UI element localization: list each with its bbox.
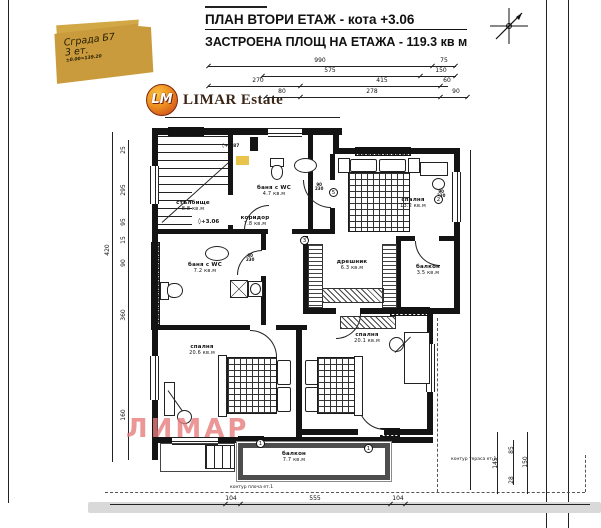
wardrobe [308, 244, 323, 308]
toilet [167, 283, 183, 298]
wardrobe [322, 288, 384, 303]
room-area: 8.8 кв.м [176, 206, 210, 212]
watermark: ЛИМАР [126, 414, 249, 444]
door-arc [415, 241, 440, 266]
dimension-line [165, 117, 340, 118]
wall [296, 325, 302, 443]
tag-circle: 2 [434, 195, 443, 204]
stair-treads [158, 136, 228, 192]
shower [230, 280, 248, 298]
room-area: 4.7 кв.м [257, 191, 291, 197]
dimension-value: 270 [252, 78, 263, 84]
room-label-bedroom-br: спалня 20.1 кв.м [354, 332, 380, 344]
stamp-notch [138, 14, 153, 27]
dimension-value: 278 [366, 89, 377, 95]
dimension-value: 420 [105, 244, 111, 255]
wall [303, 308, 460, 314]
dim-tick [453, 74, 458, 79]
door-size-label: 90230 [315, 183, 323, 191]
dimension-line [262, 76, 456, 77]
room-area: 7.2 кв.м [188, 268, 222, 274]
dimension-value: 415 [376, 78, 387, 84]
room-label-bath-left: баня с WC 7.2 кв.м [188, 262, 222, 274]
dimension-value: 104 [225, 496, 236, 502]
window [150, 356, 159, 400]
room-label-balcony-right: балкон 3.5 кв.м [416, 264, 440, 276]
duct [250, 137, 258, 151]
door-size-label: 80230 [246, 254, 254, 262]
dashed-contour [585, 455, 586, 492]
dimension-line [112, 132, 113, 462]
plan-subtitle: ЗАСТРОЕНА ПЛОЩ НА ЕТАЖА - 119.3 кв м [205, 35, 467, 49]
toilet [271, 165, 283, 180]
room-label-bedroom-tr: спалня 13.2 кв.м [400, 197, 426, 209]
room-area: 13.2 кв.м [400, 203, 426, 209]
dimension-value: 160 [121, 409, 127, 420]
room-area: 6.3 кв.м [337, 265, 368, 271]
dimension-value: 90 [452, 89, 460, 95]
dimension-value: 104 [392, 496, 403, 502]
room-label-bedroom-bl: спалня 20.6 кв.м [189, 344, 215, 356]
nightstand [408, 158, 420, 173]
dimension-value: 150 [523, 456, 529, 467]
header-rule [205, 6, 267, 8]
room-label-corridor: коридор 7.8 кв.м [241, 215, 270, 227]
door-opening [250, 325, 276, 330]
pillow [277, 360, 291, 385]
dresser [420, 162, 448, 176]
dimension-value: 85 [509, 446, 515, 454]
washing-machine-drum [250, 283, 261, 295]
dimension-value: 75 [440, 58, 448, 64]
bed-footboard [354, 356, 363, 416]
dimension-value: 295 [121, 184, 127, 195]
sink [294, 158, 317, 173]
bed-footboard [218, 355, 227, 417]
wall-hatch [168, 127, 204, 136]
annotation-note: контур тераса ет.1 [451, 457, 496, 462]
dimension-value: 575 [324, 68, 335, 74]
door-arc [250, 330, 277, 357]
dashed-contour [105, 492, 585, 493]
wardrobe [382, 244, 397, 308]
dim-tick [453, 64, 458, 69]
bed [227, 357, 277, 414]
title-block: ПЛАН ВТОРИ ЕТАЖ - кота +3.06 ЗАСТРОЕНА П… [205, 12, 467, 49]
sink [205, 246, 229, 261]
floor-plan-sheet: ПЛАН ВТОРИ ЕТАЖ - кота +3.06 ЗАСТРОЕНА П… [0, 0, 601, 528]
wardrobe [340, 316, 396, 329]
entry-steps [205, 445, 235, 469]
window [268, 128, 302, 137]
limar-monogram-icon: LM [146, 84, 178, 116]
dimension-line [470, 150, 471, 490]
room-label-balcony-bottom: балкон 7.7 кв.м [282, 451, 306, 463]
wall [333, 128, 339, 154]
dimension-value: 25 [121, 146, 127, 154]
wall-hatch [355, 147, 411, 156]
tag-circle: 5 [329, 188, 338, 197]
dimension-value: 80 [278, 89, 286, 95]
pillow [350, 159, 377, 172]
window [452, 172, 461, 222]
dimension-value: 150 [435, 68, 446, 74]
wall-hatch [151, 242, 160, 330]
tag-circle: 1 [256, 439, 265, 448]
dimension-value: 90 [121, 259, 127, 267]
room-area: 7.7 кв.м [282, 457, 306, 463]
level-value: +3.06 [201, 219, 219, 225]
tag-circle: 3 [300, 236, 309, 245]
bed [317, 357, 355, 414]
sheet-border-right-inner [546, 0, 547, 528]
pillow [379, 159, 406, 172]
annotation-note: контур плоча ет.1 [230, 485, 273, 490]
level-marker-stair: ◊+1.87 [222, 143, 239, 149]
room-area: 20.6 кв.м [189, 350, 215, 356]
level-value: +1.87 [224, 144, 239, 149]
limar-logo: LM LIMAR Estate [146, 84, 283, 116]
door-opening [228, 195, 233, 225]
dimension-line [110, 504, 590, 505]
sheet-border-left [8, 0, 9, 503]
room-area: 20.1 кв.м [354, 338, 380, 344]
dimension-value: 60 [443, 78, 451, 84]
tag-circle: 1 [364, 444, 373, 453]
dimension-value: 15 [121, 236, 127, 244]
dimension-line [208, 86, 448, 87]
dimension-value: 360 [121, 309, 127, 320]
nightstand [338, 158, 350, 173]
dashed-contour [437, 318, 438, 492]
dim-tick [465, 95, 470, 100]
dimension-line [128, 140, 129, 460]
north-compass-icon [488, 6, 530, 46]
limar-logo-text: LIMAR Estate [183, 92, 283, 109]
dimension-value: 28 [509, 476, 515, 484]
room-area: 7.8 кв.м [241, 221, 270, 227]
plan-title: ПЛАН ВТОРИ ЕТАЖ - кота +3.06 [205, 12, 467, 30]
yellow-highlight [236, 156, 249, 165]
room-label-staircase: стълбище 8.8 кв.м [176, 200, 210, 212]
door-opening [268, 229, 292, 234]
dimension-value: 990 [314, 58, 325, 64]
dimension-value: 555 [309, 496, 320, 502]
wall [152, 325, 307, 330]
pillow [277, 387, 291, 412]
sheet-border-right-outer [568, 0, 569, 528]
dimension-value: 95 [121, 218, 127, 226]
wall-hatch [390, 307, 430, 316]
building-stamp: Сграда Б7 3 ет. ±0.00=139.20 [52, 16, 155, 83]
room-label-bath-top: баня с WC 4.7 кв.м [257, 185, 291, 197]
room-label-dressing: дрешник 6.3 кв.м [337, 259, 368, 271]
level-marker-floor: ◊+3.06 [198, 218, 219, 225]
door-opening [358, 429, 384, 435]
room-area: 3.5 кв.м [416, 270, 440, 276]
